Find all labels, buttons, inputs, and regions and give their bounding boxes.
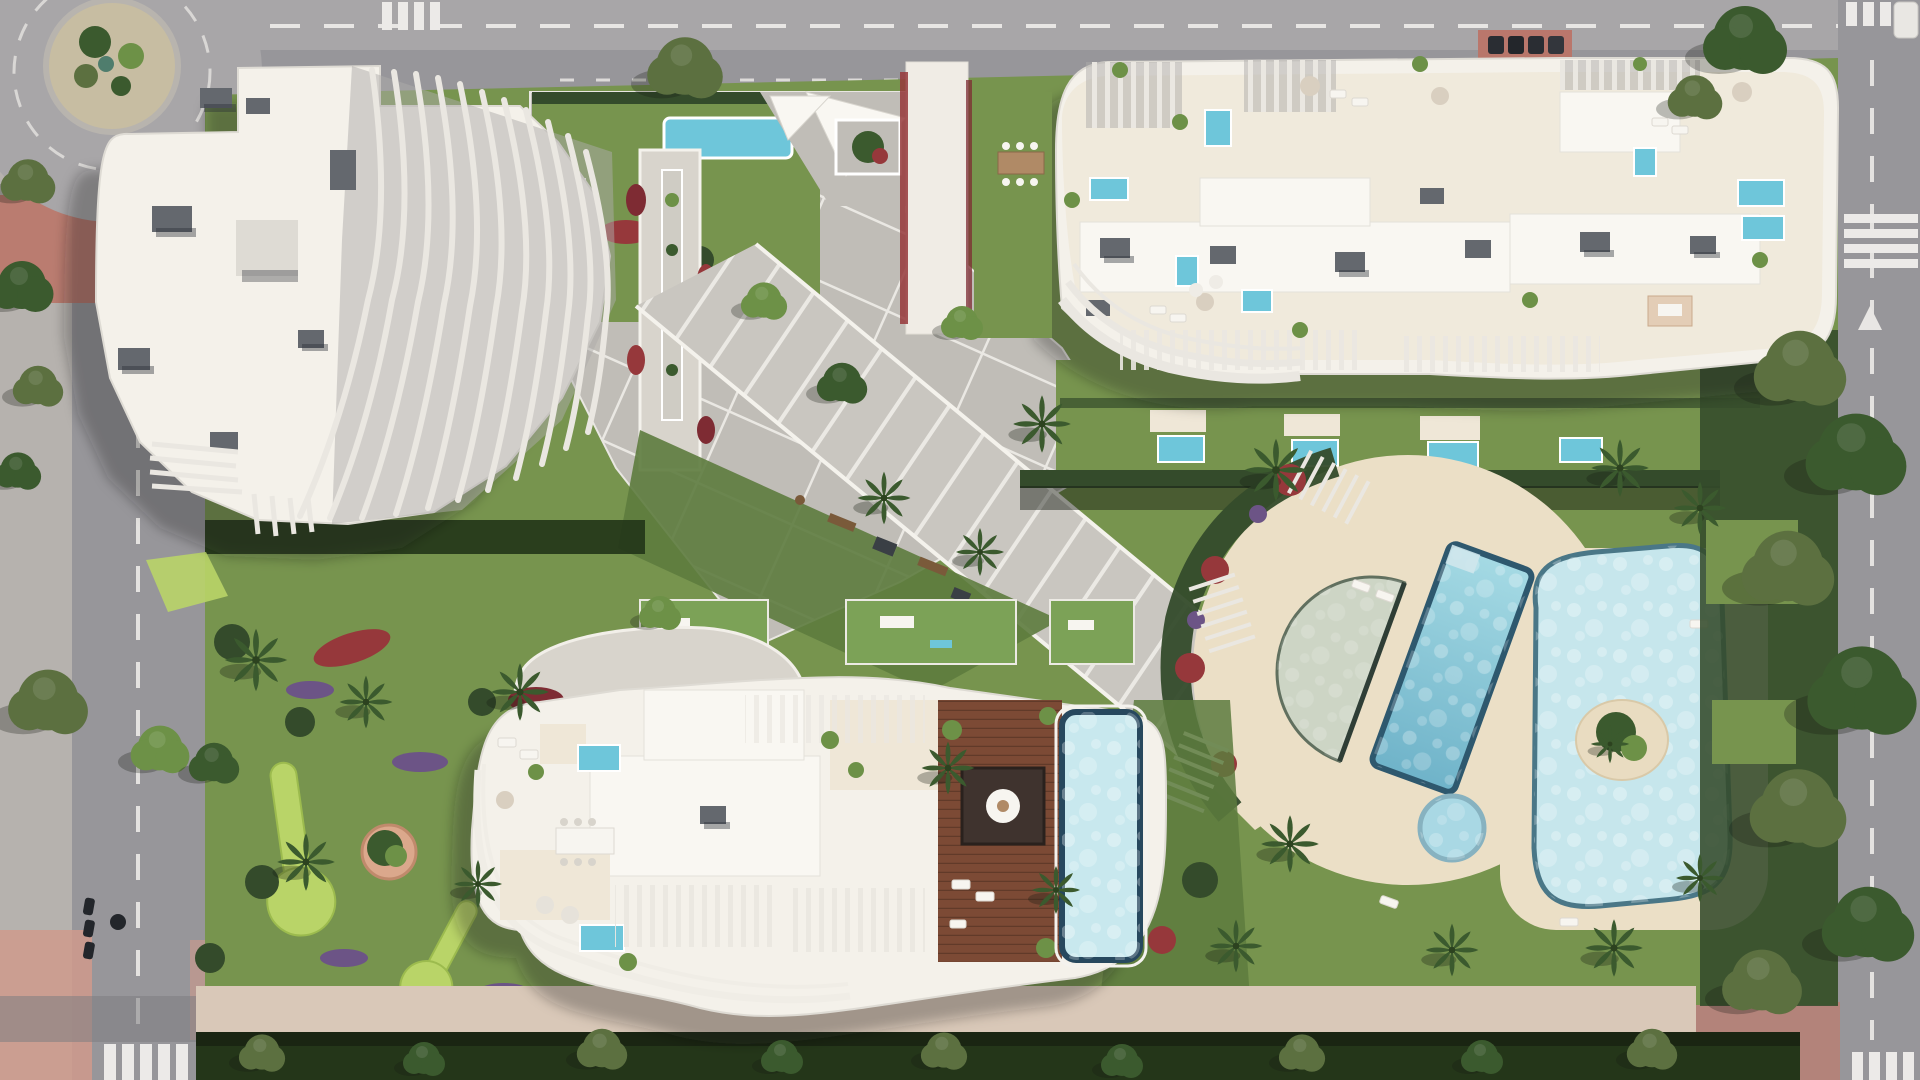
garden-plunge-pool: [1158, 436, 1204, 462]
van: [1894, 2, 1918, 38]
island-succulent: [98, 56, 114, 72]
bottom-left-road: [0, 996, 196, 1042]
car: [1548, 36, 1564, 54]
infinity-pool: [1056, 706, 1146, 966]
car: [1488, 36, 1504, 54]
east-boundary: [1700, 330, 1838, 1006]
roof-dining-table: [556, 828, 614, 854]
car: [1508, 36, 1524, 54]
island-shrub: [74, 64, 98, 88]
aerial-render: [0, 0, 1920, 1080]
flower-border: [966, 80, 972, 320]
penthouse-box: [236, 220, 298, 276]
building-south: [451, 677, 1166, 1044]
podium-lawn: [974, 92, 1052, 338]
timber-deck: [938, 700, 1062, 962]
parasol: [496, 791, 514, 809]
garden-plunge-pool: [1560, 438, 1602, 462]
island-shrub: [118, 43, 144, 69]
island-shrub: [79, 26, 111, 58]
outdoor-dining-table: [998, 152, 1044, 174]
car: [1528, 36, 1544, 54]
island-shrub: [111, 76, 131, 96]
flower-border: [900, 72, 908, 324]
podium-roof: [906, 62, 968, 334]
scene-svg: [0, 0, 1920, 1080]
